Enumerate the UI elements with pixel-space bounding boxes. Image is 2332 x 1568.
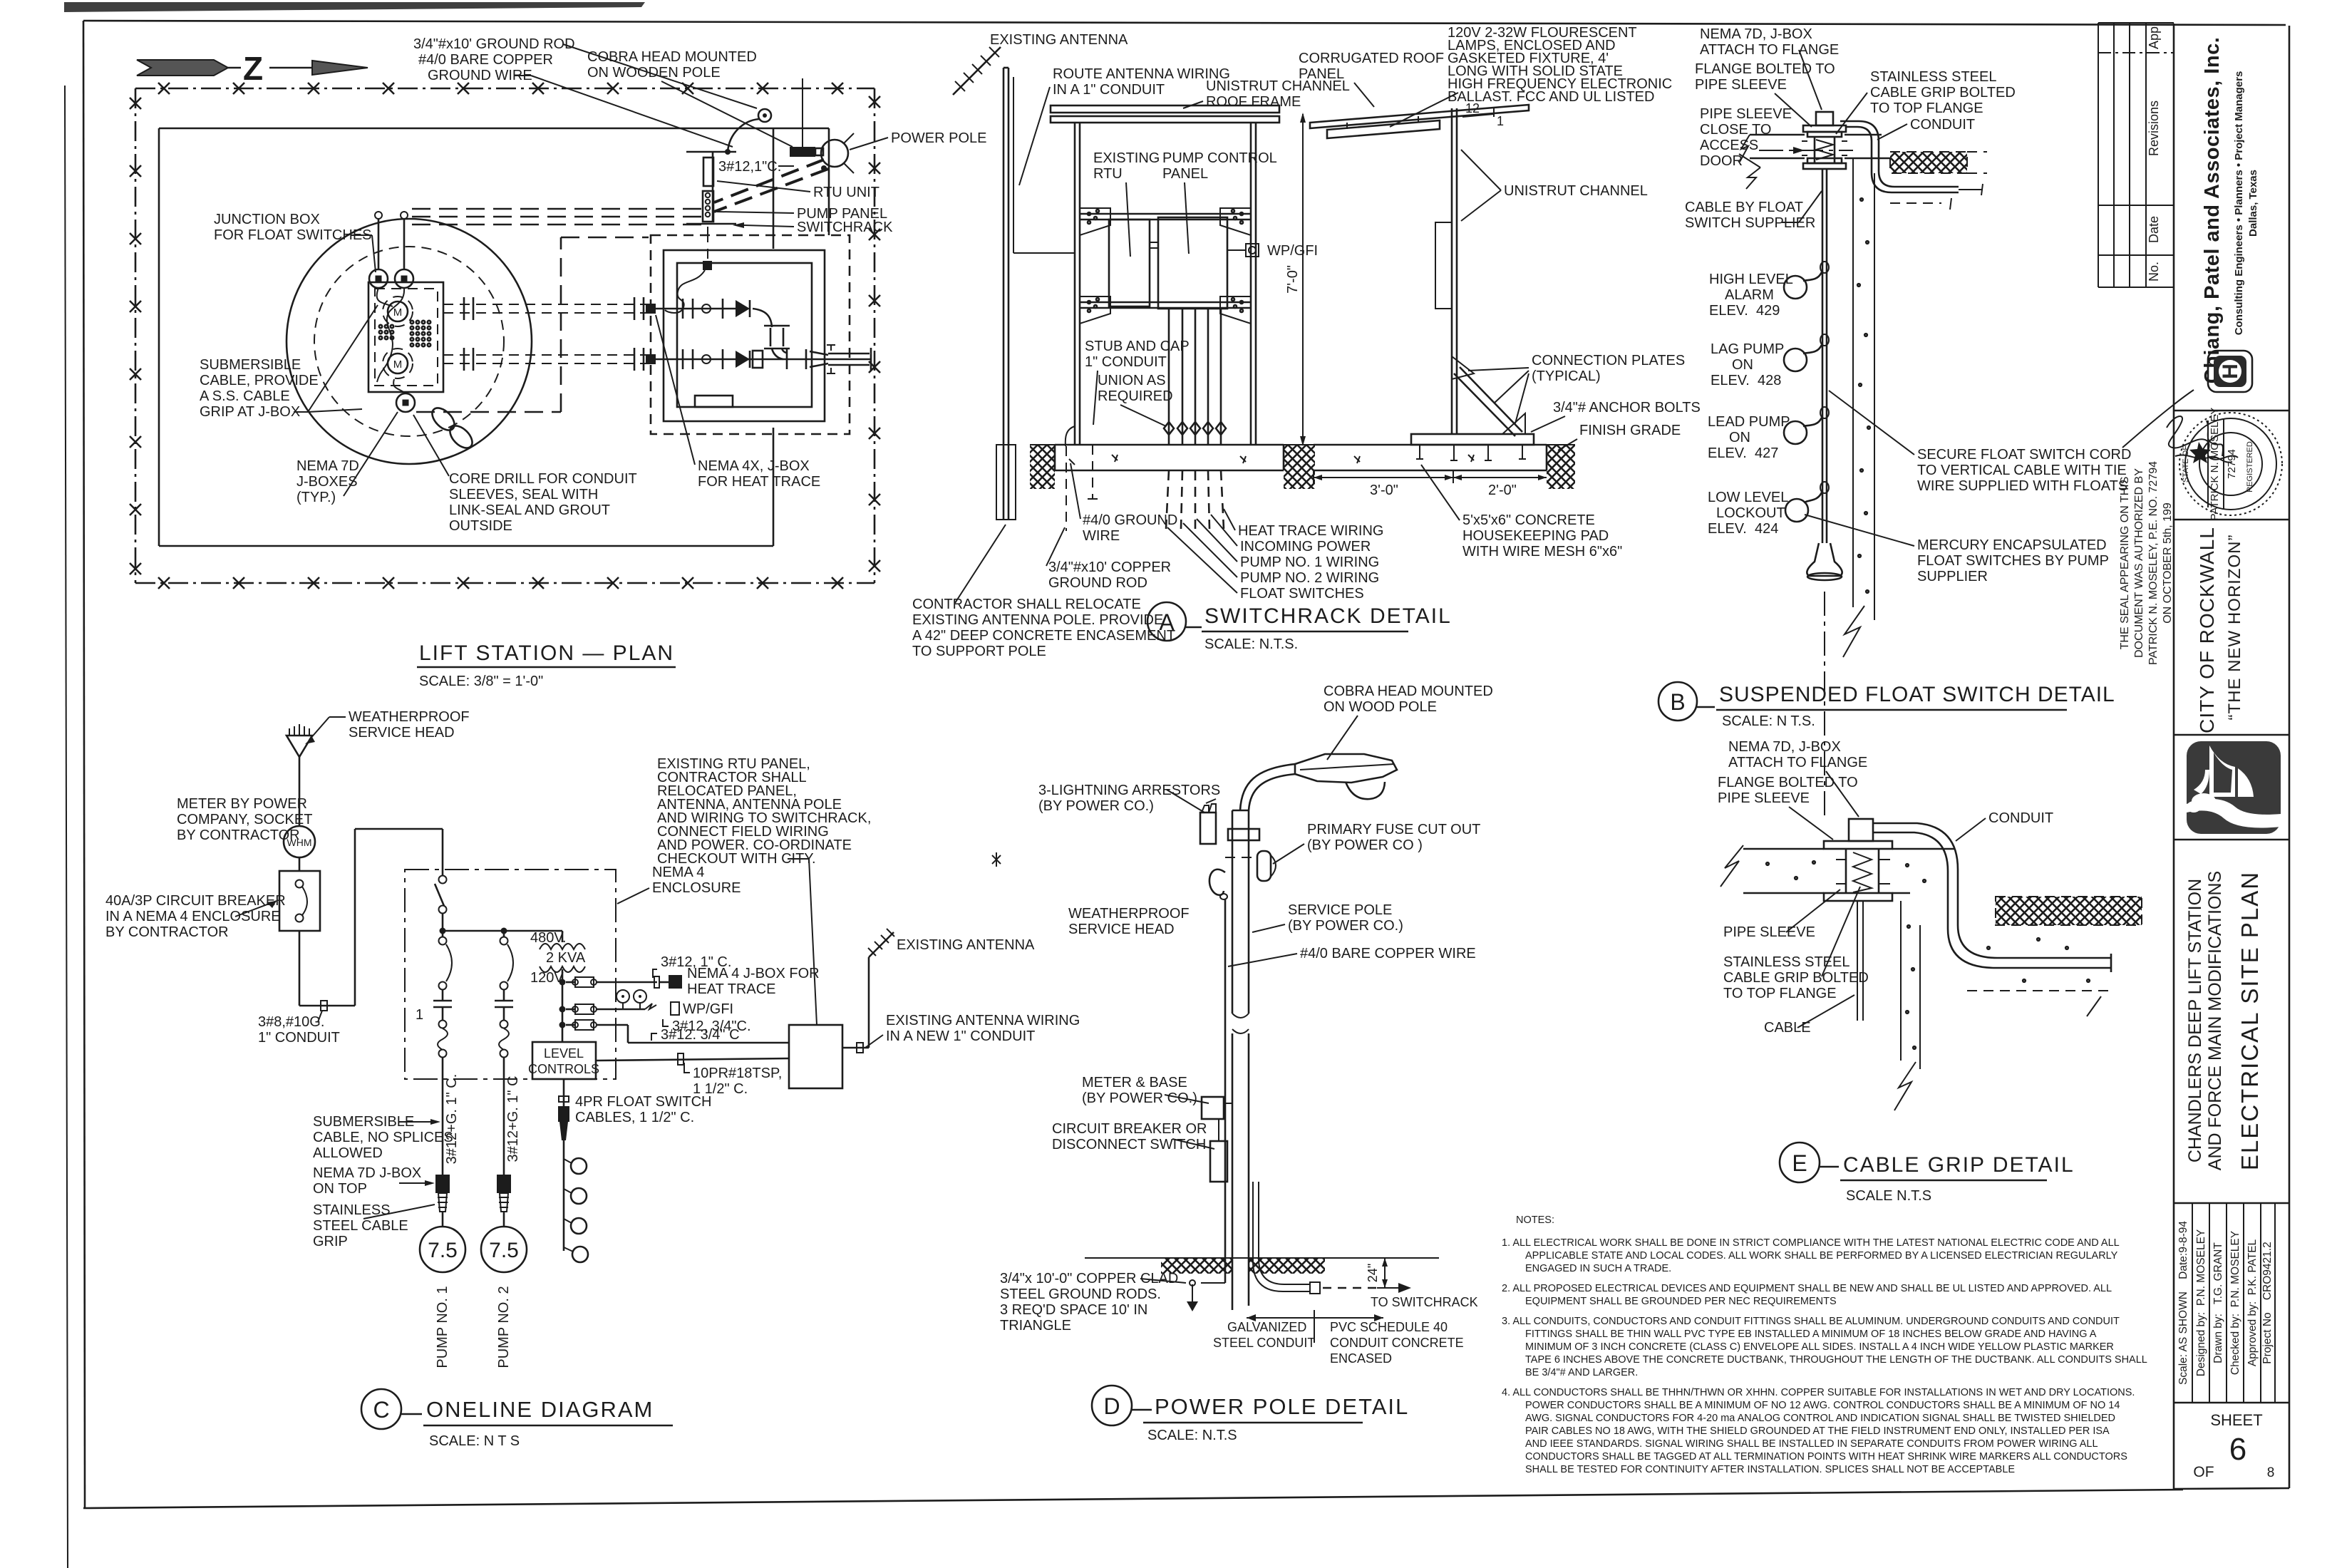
- svg-text:AWG. SIGNAL CONDUCTORS FOR 4-2: AWG. SIGNAL CONDUCTORS FOR 4-20 ma ANALO…: [1525, 1413, 2115, 1424]
- svg-text:SERVICE POLE: SERVICE POLE: [1288, 902, 1392, 918]
- svg-text:WEATHERPROOF: WEATHERPROOF: [349, 709, 470, 725]
- svg-text:INCOMING POWER: INCOMING POWER: [1240, 539, 1371, 555]
- svg-text:3'-0": 3'-0": [1370, 483, 1398, 498]
- svg-text:POWER POLE: POWER POLE: [891, 130, 986, 146]
- svg-text:CITY OF ROCKWALL: CITY OF ROCKWALL: [2196, 527, 2218, 733]
- svg-text:ENCASED: ENCASED: [1330, 1351, 1392, 1366]
- svg-text:PIPE SLEEVE: PIPE SLEEVE: [1695, 77, 1787, 93]
- svg-text:STEEL CABLE: STEEL CABLE: [313, 1218, 408, 1234]
- svg-text:FINISH GRADE: FINISH GRADE: [1579, 423, 1681, 438]
- svg-text:(BY POWER CO ): (BY POWER CO ): [1307, 837, 1423, 853]
- svg-text:“THE NEW HORIZON”: “THE NEW HORIZON”: [2225, 535, 2244, 721]
- svg-text:C: C: [373, 1397, 389, 1423]
- svg-text:Scale: AS SHOWN Date:9-8-94: Scale: AS SHOWN Date:9-8-94: [2177, 1221, 2189, 1385]
- svg-text:2 KVA: 2 KVA: [546, 950, 586, 966]
- svg-text:3#12+G. 1" C.: 3#12+G. 1" C.: [444, 1074, 460, 1165]
- svg-text:POWER POLE DETAIL: POWER POLE DETAIL: [1155, 1394, 1409, 1419]
- svg-text:SCALE: N.T.S.: SCALE: N.T.S.: [1204, 636, 1298, 652]
- svg-text:LIFT STATION — PLAN: LIFT STATION — PLAN: [419, 641, 674, 665]
- svg-text:7.5: 7.5: [428, 1239, 458, 1262]
- svg-text:WEATHERPROOF: WEATHERPROOF: [1068, 906, 1190, 922]
- svg-text:(TYP.): (TYP.): [296, 490, 336, 505]
- svg-text:120V: 120V: [530, 970, 564, 986]
- svg-text:WIRE: WIRE: [1083, 528, 1120, 544]
- svg-text:ON WOODEN POLE: ON WOODEN POLE: [587, 65, 721, 81]
- svg-text:3 REQ'D SPACE 10' IN: 3 REQ'D SPACE 10' IN: [1000, 1302, 1147, 1318]
- svg-text:3#8,#10G.: 3#8,#10G.: [258, 1014, 324, 1030]
- svg-text:SERVICE HEAD: SERVICE HEAD: [1068, 922, 1175, 937]
- svg-text:EQUIPMENT SHALL BE GROUNDED PE: EQUIPMENT SHALL BE GROUNDED PER NEC REQU…: [1525, 1296, 1837, 1307]
- svg-text:UNISTRUT CHANNEL: UNISTRUT CHANNEL: [1504, 183, 1648, 199]
- svg-text:CABLE, PROVIDE: CABLE, PROVIDE: [200, 373, 319, 388]
- svg-text:NEMA 7D, J-BOX: NEMA 7D, J-BOX: [1700, 26, 1812, 42]
- svg-text:ON WOOD POLE: ON WOOD POLE: [1324, 699, 1437, 715]
- svg-text:DISCONNECT SWITCH: DISCONNECT SWITCH: [1052, 1137, 1206, 1152]
- svg-text:A 42" DEEP CONCRETE ENCASEMENT: A 42" DEEP CONCRETE ENCASEMENT: [912, 628, 1175, 644]
- svg-text:STAINLESS STEEL: STAINLESS STEEL: [1870, 69, 1996, 85]
- svg-text:DOOR: DOOR: [1700, 153, 1743, 169]
- svg-text:(BY POWER CO.): (BY POWER CO.): [1038, 798, 1154, 814]
- svg-text:E: E: [1792, 1150, 1807, 1176]
- svg-text:METER BY POWER: METER BY POWER: [177, 796, 307, 812]
- svg-text:FLOAT SWITCHES: FLOAT SWITCHES: [1240, 586, 1364, 602]
- svg-text:CONNECTION PLATES: CONNECTION PLATES: [1532, 353, 1685, 368]
- svg-text:PUMP NO. 1: PUMP NO. 1: [435, 1286, 450, 1368]
- svg-text:CONDUCTORS SHALL BE TAGGED AT: CONDUCTORS SHALL BE TAGGED AT ALL TERMIN…: [1525, 1451, 2127, 1463]
- svg-text:ELEV. 424: ELEV. 424: [1708, 521, 1778, 537]
- svg-text:Checked by: P.N. MOSELEY: Checked by: P.N. MOSELEY: [2229, 1231, 2241, 1375]
- svg-text:SUBMERSIBLE: SUBMERSIBLE: [313, 1114, 414, 1130]
- svg-text:TO SWITCHRACK: TO SWITCHRACK: [1371, 1295, 1478, 1309]
- svg-text:10PR#18TSP,: 10PR#18TSP,: [693, 1066, 782, 1081]
- svg-text:Z: Z: [243, 50, 263, 87]
- svg-text:CORE DRILL FOR CONDUIT: CORE DRILL FOR CONDUIT: [449, 471, 637, 487]
- svg-text:POWER CONDUCTORS SHALL BE A MI: POWER CONDUCTORS SHALL BE A MINIMUM OF N…: [1525, 1400, 2120, 1411]
- svg-text:D: D: [1103, 1393, 1120, 1419]
- svg-text:LAG PUMP: LAG PUMP: [1711, 341, 1784, 357]
- svg-text:Dallas, Texas: Dallas, Texas: [2247, 170, 2259, 237]
- svg-text:WITH WIRE MESH 6"x6": WITH WIRE MESH 6"x6": [1462, 544, 1622, 559]
- svg-text:(BY POWER CO.): (BY POWER CO.): [1288, 918, 1403, 934]
- svg-text:ROUTE ANTENNA WIRING: ROUTE ANTENNA WIRING: [1053, 66, 1230, 82]
- svg-text:Designed by: P.N. MOSELEY: Designed by: P.N. MOSELEY: [2195, 1229, 2207, 1376]
- svg-text:LINK-SEAL AND GROUT: LINK-SEAL AND GROUT: [449, 502, 610, 518]
- svg-text:3. ALL CONDUITS, CONDUCTORS A: 3. ALL CONDUITS, CONDUCTORS AND CONDUIT …: [1502, 1316, 2120, 1327]
- svg-text:PIPE SLEEVE: PIPE SLEEVE: [1700, 106, 1792, 122]
- svg-text:GRIP AT J-BOX: GRIP AT J-BOX: [200, 404, 300, 420]
- svg-text:OF: OF: [2193, 1464, 2214, 1480]
- svg-text:ATTACH TO FLANGE: ATTACH TO FLANGE: [1700, 42, 1839, 58]
- svg-text:ON: ON: [1729, 430, 1750, 445]
- svg-text:HEAT TRACE WIRING: HEAT TRACE WIRING: [1238, 523, 1383, 539]
- svg-text:PAIR CABLES NO 18 AWG, WITH TH: PAIR CABLES NO 18 AWG, WITH THE SHIELD G…: [1525, 1425, 2110, 1437]
- svg-text:App: App: [2147, 26, 2161, 49]
- svg-text:4. ALL CONDUCTORS SHALL BE TH: 4. ALL CONDUCTORS SHALL BE THHN/THWN OR …: [1502, 1387, 2135, 1398]
- svg-text:1: 1: [416, 1007, 423, 1023]
- svg-text:5'x5'x6" CONCRETE: 5'x5'x6" CONCRETE: [1462, 512, 1595, 528]
- svg-text:PVC SCHEDULE 40: PVC SCHEDULE 40: [1330, 1320, 1448, 1334]
- svg-text:BE 3/4"# AND LARGER.: BE 3/4"# AND LARGER.: [1525, 1367, 1638, 1378]
- svg-text:H: H: [2219, 363, 2242, 379]
- svg-text:BY CONTRACTOR: BY CONTRACTOR: [105, 924, 229, 940]
- svg-text:SCALE: N T.S.: SCALE: N T.S.: [1722, 713, 1815, 729]
- svg-text:FLANGE BOLTED TO: FLANGE BOLTED TO: [1718, 775, 1858, 790]
- svg-text:ATTACH TO FLANGE: ATTACH TO FLANGE: [1728, 755, 1867, 770]
- svg-text:EXISTING: EXISTING: [1093, 150, 1160, 166]
- svg-text:ELEV. 429: ELEV. 429: [1709, 303, 1780, 319]
- svg-text:Approved by: P.K. PATEL: Approved by: P.K. PATEL: [2246, 1239, 2259, 1366]
- svg-text:EXISTING ANTENNA WIRING: EXISTING ANTENNA WIRING: [886, 1013, 1080, 1028]
- svg-text:SWITCHRACK: SWITCHRACK: [797, 220, 893, 235]
- svg-text:1" CONDUIT: 1" CONDUIT: [1085, 354, 1167, 370]
- svg-text:2'-0": 2'-0": [1488, 483, 1517, 498]
- svg-text:ENGAGED IN SUCH A TRADE.: ENGAGED IN SUCH A TRADE.: [1525, 1263, 1671, 1274]
- svg-text:COMPANY, SOCKET: COMPANY, SOCKET: [177, 812, 312, 827]
- svg-text:CONDUIT: CONDUIT: [1988, 810, 2053, 826]
- svg-text:SUSPENDED FLOAT SWITCH DETAIL: SUSPENDED FLOAT SWITCH DETAIL: [1719, 683, 2115, 706]
- svg-text:No.: No.: [2147, 262, 2161, 282]
- svg-text:CONTRACTOR SHALL RELOCATE: CONTRACTOR SHALL RELOCATE: [912, 597, 1141, 612]
- svg-text:NEMA 7D J-BOX: NEMA 7D J-BOX: [313, 1165, 421, 1181]
- svg-text:CLOSE TO: CLOSE TO: [1700, 122, 1771, 138]
- svg-text:IN A 1" CONDUIT: IN A 1" CONDUIT: [1053, 82, 1165, 98]
- svg-text:FOR HEAT TRACE: FOR HEAT TRACE: [698, 474, 820, 490]
- svg-text:Project No CRO9421.2: Project No CRO9421.2: [2261, 1242, 2274, 1363]
- svg-text:480V.: 480V.: [530, 930, 566, 946]
- svg-text:BY CONTRACTOR: BY CONTRACTOR: [177, 827, 300, 843]
- svg-text:4PR FLOAT SWITCH: 4PR FLOAT SWITCH: [575, 1094, 712, 1110]
- svg-text:3/4"# ANCHOR BOLTS: 3/4"# ANCHOR BOLTS: [1553, 400, 1701, 416]
- svg-text:SHEET: SHEET: [2210, 1411, 2262, 1429]
- svg-text:PIPE SLEEVE: PIPE SLEEVE: [1723, 924, 1815, 940]
- svg-text:EXISTING ANTENNA: EXISTING ANTENNA: [897, 937, 1035, 953]
- svg-text:REGISTERED: REGISTERED: [2246, 441, 2254, 492]
- svg-text:DOCUMENT WAS AUTHORIZED BY: DOCUMENT WAS AUTHORIZED BY: [2133, 468, 2145, 658]
- svg-text:FLOAT SWITCHES BY PUMP: FLOAT SWITCHES BY PUMP: [1917, 553, 2109, 569]
- svg-text:STEEL CONDUIT: STEEL CONDUIT: [1213, 1336, 1315, 1350]
- svg-text:M: M: [393, 306, 403, 319]
- svg-text:#4/0 GROUND: #4/0 GROUND: [1083, 512, 1177, 528]
- svg-text:APPLICABLE STATE AND LOCAL COD: APPLICABLE STATE AND LOCAL CODES. ALL WO…: [1525, 1250, 2118, 1262]
- svg-text:CABLE GRIP BOLTED: CABLE GRIP BOLTED: [1870, 85, 2016, 100]
- svg-text:CONTROLS: CONTROLS: [528, 1062, 599, 1076]
- svg-text:SHALL BE TESTED FOR CONTINUITY: SHALL BE TESTED FOR CONTINUITY AFTER INS…: [1525, 1464, 2015, 1475]
- svg-text:NEMA 7D: NEMA 7D: [296, 458, 359, 474]
- svg-text:ELEV. 427: ELEV. 427: [1708, 445, 1778, 461]
- svg-text:PRIMARY FUSE CUT OUT: PRIMARY FUSE CUT OUT: [1307, 822, 1480, 837]
- svg-text:CIRCUIT BREAKER OR: CIRCUIT BREAKER OR: [1052, 1121, 1207, 1137]
- svg-text:COBRA HEAD MOUNTED: COBRA HEAD MOUNTED: [587, 49, 757, 65]
- svg-text:7'-0": 7'-0": [1285, 265, 1301, 294]
- svg-text:JUNCTION BOX: JUNCTION BOX: [214, 212, 320, 227]
- svg-text:ACCESS: ACCESS: [1700, 138, 1758, 153]
- svg-text:GALVANIZED: GALVANIZED: [1227, 1320, 1306, 1334]
- svg-text:7.5: 7.5: [489, 1239, 519, 1262]
- svg-text:3/4"#x10' COPPER: 3/4"#x10' COPPER: [1048, 559, 1171, 575]
- svg-text:AND IEEE STANDARDS. SIGNAL WIR: AND IEEE STANDARDS. SIGNAL WIRING SHALL …: [1525, 1438, 2098, 1450]
- svg-text:BALLAST. FCC AND UL LISTED: BALLAST. FCC AND UL LISTED: [1448, 89, 1654, 105]
- svg-text:PANEL: PANEL: [1299, 66, 1344, 82]
- svg-text:MERCURY ENCAPSULATED: MERCURY ENCAPSULATED: [1917, 537, 2107, 553]
- svg-text:TO TOP FLANGE: TO TOP FLANGE: [1870, 100, 1983, 116]
- svg-text:CABLES, 1 1/2" C.: CABLES, 1 1/2" C.: [575, 1110, 694, 1125]
- svg-text:RTU UNIT: RTU UNIT: [813, 185, 879, 200]
- svg-text:SUPPLIER: SUPPLIER: [1917, 569, 1988, 584]
- svg-text:COBRA HEAD MOUNTED: COBRA HEAD MOUNTED: [1324, 684, 1493, 699]
- svg-text:ALARM: ALARM: [1725, 287, 1774, 303]
- svg-text:Chiang, Patel and Associates,: Chiang, Patel and Associates, Inc.: [2201, 37, 2224, 384]
- svg-text:SCALE: N T S: SCALE: N T S: [429, 1433, 520, 1449]
- svg-text:CABLE, NO SPLICES: CABLE, NO SPLICES: [313, 1130, 453, 1145]
- svg-text:CABLE GRIP BOLTED: CABLE GRIP BOLTED: [1723, 970, 1869, 986]
- svg-text:SECURE FLOAT SWITCH CORD: SECURE FLOAT SWITCH CORD: [1917, 447, 2131, 463]
- svg-text:A S.S. CABLE: A S.S. CABLE: [200, 388, 290, 404]
- svg-text:CORRUGATED ROOF: CORRUGATED ROOF: [1299, 51, 1444, 66]
- svg-text:WIRE SUPPLIED WITH FLOATS: WIRE SUPPLIED WITH FLOATS: [1917, 478, 2127, 494]
- svg-text:(TYPICAL): (TYPICAL): [1532, 368, 1601, 384]
- svg-text:ON OCTOBER 5th, 199: ON OCTOBER 5th, 199: [2162, 502, 2174, 624]
- svg-text:FLANGE BOLTED TO: FLANGE BOLTED TO: [1695, 61, 1835, 77]
- svg-text:TO SUPPORT POLE: TO SUPPORT POLE: [912, 644, 1046, 659]
- svg-text:HOUSEKEEPING PAD: HOUSEKEEPING PAD: [1462, 528, 1609, 544]
- svg-text:40A/3P CIRCUIT BREAKER: 40A/3P CIRCUIT BREAKER: [105, 893, 286, 909]
- svg-text:NEMA 4X, J-BOX: NEMA 4X, J-BOX: [698, 458, 810, 474]
- svg-text:Revisions: Revisions: [2147, 100, 2161, 156]
- svg-text:TRIANGLE: TRIANGLE: [1000, 1318, 1071, 1334]
- svg-text:2. ALL PROPOSED ELECTRICAL DE: 2. ALL PROPOSED ELECTRICAL DEVICES AND E…: [1502, 1283, 2112, 1294]
- svg-text:1. ALL ELECTRICAL WORK SHALL: 1. ALL ELECTRICAL WORK SHALL BE DONE IN …: [1502, 1237, 2120, 1249]
- svg-text:STUB AND CAP: STUB AND CAP: [1085, 339, 1190, 354]
- svg-text:CABLE BY FLOAT: CABLE BY FLOAT: [1685, 200, 1803, 215]
- svg-text:TAPE 6 INCHES ABOVE THE CONCRE: TAPE 6 INCHES ABOVE THE CONCRETE DUCTBAN…: [1525, 1354, 2147, 1366]
- svg-text:SWITCHRACK DETAIL: SWITCHRACK DETAIL: [1204, 604, 1452, 628]
- svg-text:WP/GFI: WP/GFI: [1267, 243, 1318, 259]
- svg-text:NOTES:: NOTES:: [1516, 1214, 1554, 1226]
- svg-text:FITTINGS SHALL BE THIN WALL PV: FITTINGS SHALL BE THIN WALL PVC TYPE EB …: [1525, 1329, 2097, 1340]
- svg-text:SERVICE HEAD: SERVICE HEAD: [349, 725, 455, 741]
- svg-text:LEVEL: LEVEL: [544, 1046, 584, 1061]
- svg-text:3#12. 3/4" C: 3#12. 3/4" C: [661, 1027, 740, 1043]
- svg-text:PANEL: PANEL: [1162, 166, 1208, 182]
- svg-text:GROUND ROD: GROUND ROD: [1048, 575, 1147, 591]
- svg-text:ONELINE DIAGRAM: ONELINE DIAGRAM: [426, 1397, 654, 1422]
- svg-text:HIGH LEVEL: HIGH LEVEL: [1709, 272, 1793, 287]
- svg-text:UNION AS: UNION AS: [1098, 373, 1166, 388]
- svg-text:Date: Date: [2147, 216, 2161, 243]
- svg-text:IN A NEMA 4 ENCLOSURE: IN A NEMA 4 ENCLOSURE: [105, 909, 281, 924]
- svg-text:CONDUIT CONCRETE: CONDUIT CONCRETE: [1330, 1336, 1464, 1350]
- svg-text:A: A: [1159, 609, 1175, 635]
- svg-text:STEEL GROUND RODS.: STEEL GROUND RODS.: [1000, 1286, 1161, 1302]
- svg-text:8: 8: [2267, 1465, 2275, 1480]
- svg-text:LEAD PUMP: LEAD PUMP: [1708, 414, 1790, 430]
- svg-text:TO TOP FLANGE: TO TOP FLANGE: [1723, 986, 1837, 1001]
- svg-text:#4/0 BARE COPPER: #4/0 BARE COPPER: [418, 52, 553, 68]
- svg-text:ENCLOSURE: ENCLOSURE: [652, 880, 741, 896]
- svg-text:RTU: RTU: [1093, 166, 1123, 182]
- svg-text:M: M: [393, 359, 403, 371]
- svg-text:LOW LEVEL: LOW LEVEL: [1708, 490, 1788, 505]
- svg-text:PUMP NO. 2: PUMP NO. 2: [496, 1286, 512, 1368]
- svg-text:3#12,1"C.: 3#12,1"C.: [718, 159, 781, 175]
- svg-text:IN A NEW 1" CONDUIT: IN A NEW 1" CONDUIT: [886, 1028, 1035, 1044]
- svg-text:ELECTRICAL SITE PLAN: ELECTRICAL SITE PLAN: [2236, 871, 2263, 1170]
- svg-text:ALLOWED: ALLOWED: [313, 1145, 383, 1161]
- svg-text:72794: 72794: [2226, 449, 2238, 479]
- svg-text:CABLE GRIP DETAIL: CABLE GRIP DETAIL: [1843, 1153, 2075, 1177]
- svg-text:GRIP: GRIP: [313, 1234, 348, 1249]
- svg-text:#4/0 BARE COPPER WIRE: #4/0 BARE COPPER WIRE: [1300, 946, 1476, 961]
- svg-text:3/4"#x10' GROUND ROD: 3/4"#x10' GROUND ROD: [413, 36, 575, 52]
- svg-text:THE SEAL APPEARING ON THIS: THE SEAL APPEARING ON THIS: [2119, 477, 2131, 650]
- svg-text:ON: ON: [1732, 357, 1753, 373]
- svg-text:ELEV. 428: ELEV. 428: [1711, 373, 1781, 388]
- svg-text:SCALE N.T.S: SCALE N.T.S: [1846, 1188, 1931, 1204]
- svg-text:LOCKOUT: LOCKOUT: [1716, 505, 1785, 521]
- svg-text:NEMA 4 J-BOX FOR: NEMA 4 J-BOX FOR: [687, 966, 820, 981]
- svg-text:TO VERTICAL CABLE WITH TIE: TO VERTICAL CABLE WITH TIE: [1917, 463, 2127, 478]
- svg-text:NEMA 7D, J-BOX: NEMA 7D, J-BOX: [1728, 739, 1841, 755]
- svg-text:B: B: [1670, 689, 1685, 715]
- svg-text:STATE OF: STATE OF: [2182, 445, 2190, 483]
- svg-text:EXISTING ANTENNA POLE. PROVID: EXISTING ANTENNA POLE. PROVIDE: [912, 612, 1163, 628]
- svg-text:MINIMUM OF 3 INCH CONCRETE (CL: MINIMUM OF 3 INCH CONCRETE (CLASS C) ENV…: [1525, 1341, 2114, 1353]
- svg-text:OUTSIDE: OUTSIDE: [449, 518, 512, 534]
- svg-text:SCALE: 3/8" = 1'-0": SCALE: 3/8" = 1'-0": [419, 674, 543, 689]
- svg-text:PATRICK N. MOSELEY: PATRICK N. MOSELEY: [2209, 408, 2221, 521]
- svg-text:Consulting Engineers • Planner: Consulting Engineers • Planners • Projec…: [2233, 71, 2245, 336]
- svg-text:1: 1: [1497, 114, 1504, 128]
- svg-text:24": 24": [1366, 1264, 1380, 1282]
- svg-text:NEMA 4: NEMA 4: [652, 865, 704, 880]
- svg-text:PUMP CONTROL: PUMP CONTROL: [1162, 150, 1277, 166]
- svg-text:SLEEVES, SEAL WITH: SLEEVES, SEAL WITH: [449, 487, 598, 502]
- svg-text:PUMP NO. 1 WIRING: PUMP NO. 1 WIRING: [1240, 555, 1379, 570]
- svg-text:REQUIRED: REQUIRED: [1098, 388, 1173, 404]
- svg-text:EXISTING ANTENNA: EXISTING ANTENNA: [990, 32, 1128, 48]
- svg-text:AND FORCE MAIN MODIFICATIONS: AND FORCE MAIN MODIFICATIONS: [2205, 871, 2225, 1170]
- svg-text:3/4"x 10'-0" COPPER CLAD: 3/4"x 10'-0" COPPER CLAD: [1000, 1271, 1178, 1286]
- svg-text:SUBMERSIBLE: SUBMERSIBLE: [200, 357, 301, 373]
- svg-text:ON TOP: ON TOP: [313, 1181, 367, 1197]
- svg-text:PATRICK N. MOSELEY, P.E. NO. 7: PATRICK N. MOSELEY, P.E. NO. 72794: [2147, 461, 2160, 665]
- svg-text:SCALE: N.T.S: SCALE: N.T.S: [1147, 1428, 1237, 1443]
- svg-text:6: 6: [2229, 1432, 2246, 1467]
- svg-text:3-LIGHTNING ARRESTORS: 3-LIGHTNING ARRESTORS: [1038, 783, 1220, 798]
- svg-text:PIPE SLEEVE: PIPE SLEEVE: [1718, 790, 1810, 806]
- svg-text:PUMP NO. 2 WIRING: PUMP NO. 2 WIRING: [1240, 570, 1379, 586]
- svg-text:METER & BASE: METER & BASE: [1082, 1075, 1187, 1090]
- svg-text:ROOF FRAME: ROOF FRAME: [1206, 94, 1301, 110]
- svg-text:CABLE: CABLE: [1764, 1020, 1811, 1036]
- svg-text:3#12+G. 1" C: 3#12+G. 1" C: [505, 1076, 521, 1162]
- svg-text:1" CONDUIT: 1" CONDUIT: [258, 1030, 340, 1046]
- svg-text:WP/GFI: WP/GFI: [683, 1001, 733, 1017]
- svg-text:CHANDLERS DEEP LIFT STATION: CHANDLERS DEEP LIFT STATION: [2185, 879, 2205, 1162]
- svg-text:Drawn by: T.G. GRANT: Drawn by: T.G. GRANT: [2212, 1242, 2224, 1363]
- svg-text:FOR FLOAT SWITCHES: FOR FLOAT SWITCHES: [214, 227, 372, 243]
- svg-text:HEAT TRACE: HEAT TRACE: [687, 981, 775, 997]
- svg-text:CONDUIT: CONDUIT: [1910, 117, 1975, 133]
